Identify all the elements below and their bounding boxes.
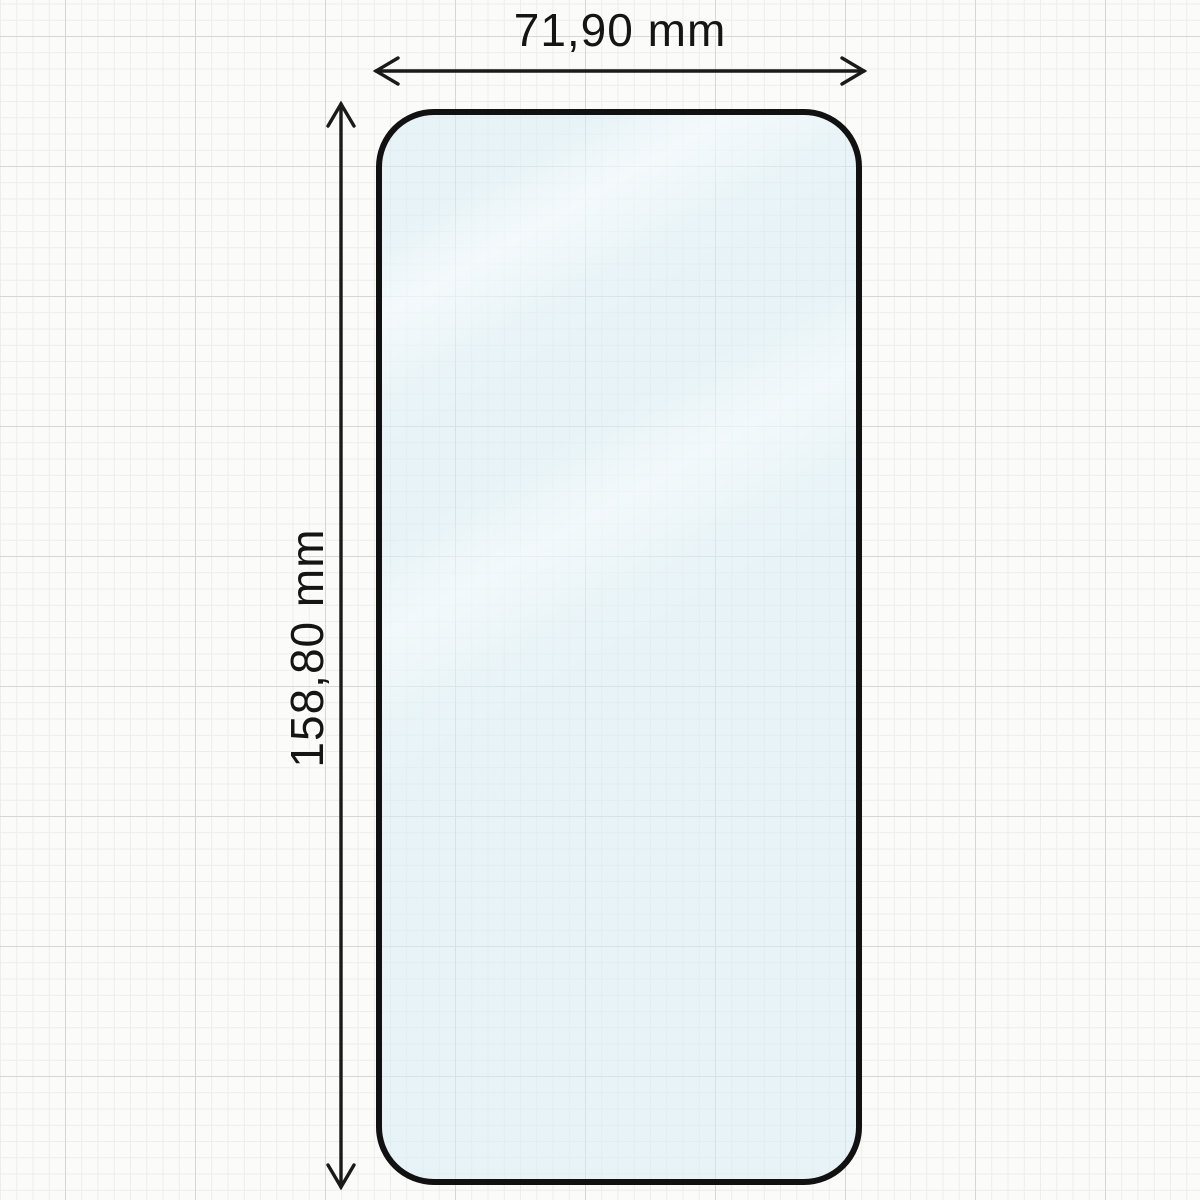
graph-paper-background: 71,90 mm 158,80 mm [0, 0, 1200, 1200]
width-dimension-label: 71,90 mm [370, 7, 870, 53]
height-dimension-label: 158,80 mm [284, 528, 330, 767]
width-arrow-graphic [370, 50, 870, 92]
glass-reflection [382, 115, 856, 1179]
screen-protector-glass [376, 109, 862, 1185]
width-dimension-arrow [370, 50, 870, 92]
